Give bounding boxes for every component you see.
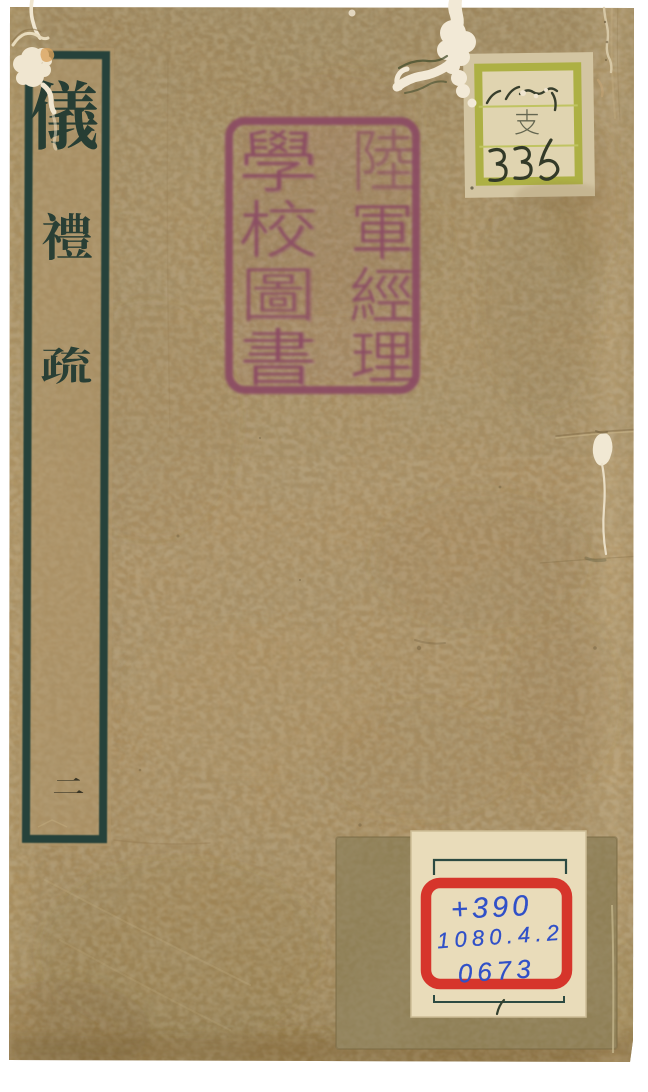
svg-text:0673: 0673 (457, 953, 537, 988)
svg-text:+390: +390 (450, 890, 533, 926)
